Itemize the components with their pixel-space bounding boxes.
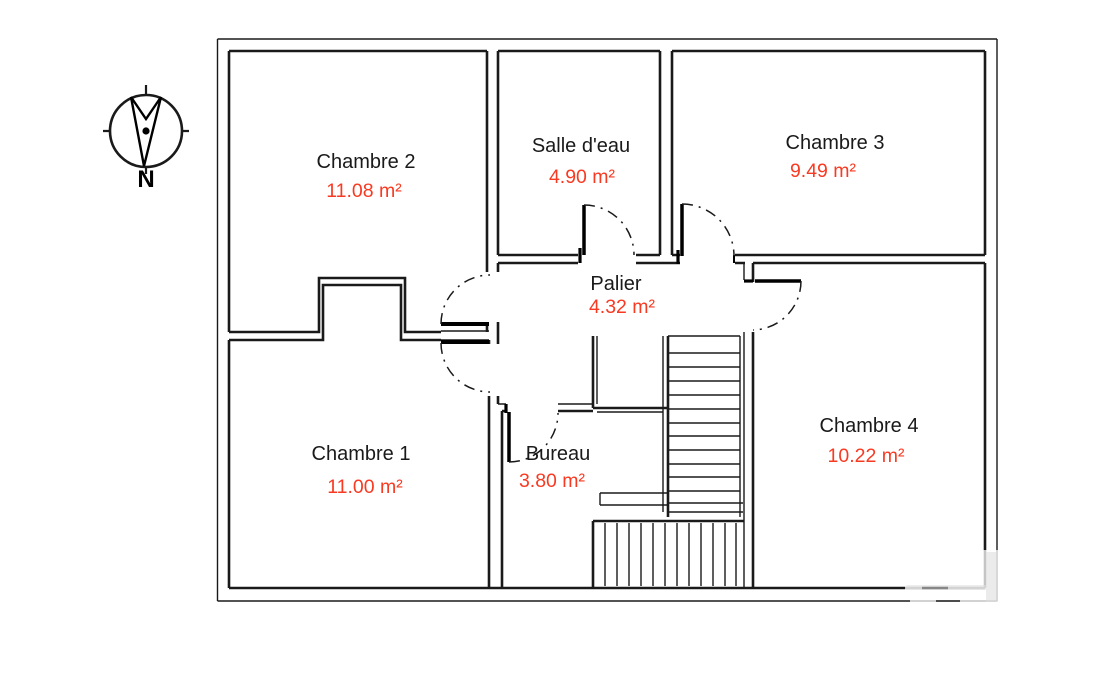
door-swing-arc [584,205,634,255]
room-label-bureau: Bureau [526,443,591,465]
room-area-chambre-3: 9.49 m² [790,160,857,182]
stair-lower-flight-edge [593,521,744,588]
room-label-chambre-2: Chambre 2 [317,151,416,173]
stair-treads-lower [605,523,736,586]
door-chambre-3 [678,204,734,264]
room-area-bureau: 3.80 m² [519,470,586,492]
door-chambre-4 [744,281,801,330]
door-swing-arc [441,343,490,392]
room-area-chambre-1: 11.00 m² [327,476,403,498]
compass-center-dot [142,127,149,134]
room-label-chambre-3: Chambre 3 [786,132,885,154]
compass: N [103,85,189,193]
stair-landing-step [600,493,668,505]
room-area-chambre-2: 11.08 m² [326,180,402,202]
room-area-salle-deau: 4.90 m² [549,166,616,188]
stair-treads-upper [669,353,740,491]
room-label-palier: Palier [590,273,641,295]
room-area-chambre-4: 10.22 m² [828,445,905,467]
floor-plan-drawing: N [0,0,1102,700]
room-area-palier: 4.32 m² [589,296,656,318]
stair-shaft-walls [593,336,668,517]
door-chambre-1 [441,342,490,392]
door-chambre-2 [441,275,490,324]
compass-north-label: N [137,166,154,193]
door-swing-arc [753,281,801,330]
room-label-salle-deau: Salle d'eau [532,135,630,157]
room-labels: Chambre 2 11.08 m² Salle d'eau 4.90 m² C… [312,132,919,498]
room-label-chambre-4: Chambre 4 [820,415,919,437]
outer-wall-envelope [218,39,998,601]
floor-plan-page: N [0,0,1102,700]
room-bureau-walls [498,404,593,588]
door-swing-arc [441,275,490,324]
room-label-chambre-1: Chambre 1 [312,443,411,465]
door-swing-arc [682,204,734,256]
